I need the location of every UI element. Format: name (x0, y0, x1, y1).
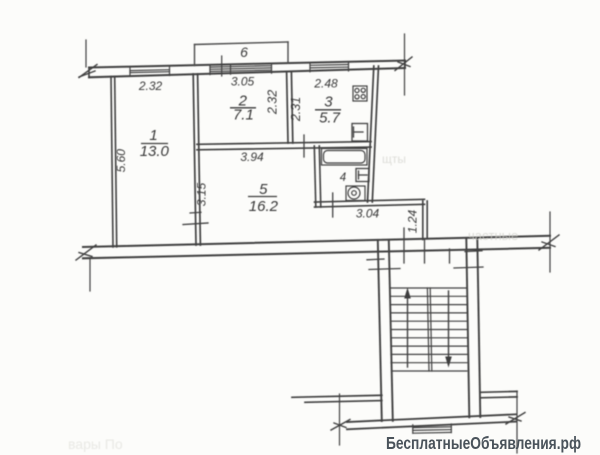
svg-text:5.60: 5.60 (114, 149, 128, 173)
svg-text:3.15: 3.15 (195, 182, 209, 206)
svg-text:2.48: 2.48 (313, 77, 338, 91)
svg-text:2.32: 2.32 (266, 90, 280, 115)
svg-text:3.94: 3.94 (240, 150, 264, 164)
svg-text:4: 4 (340, 172, 346, 184)
svg-text:2.31: 2.31 (289, 97, 303, 122)
svg-text:16.2: 16.2 (249, 198, 279, 215)
svg-text:2.32: 2.32 (138, 79, 163, 93)
svg-text:3: 3 (324, 94, 333, 111)
svg-text:13.0: 13.0 (140, 143, 170, 160)
svg-text:щты: щты (382, 152, 406, 166)
svg-text:3.04: 3.04 (356, 207, 380, 221)
svg-text:6: 6 (240, 44, 248, 60)
svg-text:5.7: 5.7 (319, 110, 341, 127)
svg-text:вары По: вары По (68, 436, 123, 452)
svg-text:частные: частные (468, 228, 518, 243)
svg-text:1: 1 (149, 127, 157, 144)
svg-text:7.1: 7.1 (233, 107, 254, 124)
svg-text:1.24: 1.24 (406, 209, 420, 233)
svg-text:3.05: 3.05 (231, 75, 255, 89)
svg-text:БесплатныеОбъявления.рф: БесплатныеОбъявления.рф (386, 433, 581, 453)
svg-text:5: 5 (259, 181, 268, 198)
